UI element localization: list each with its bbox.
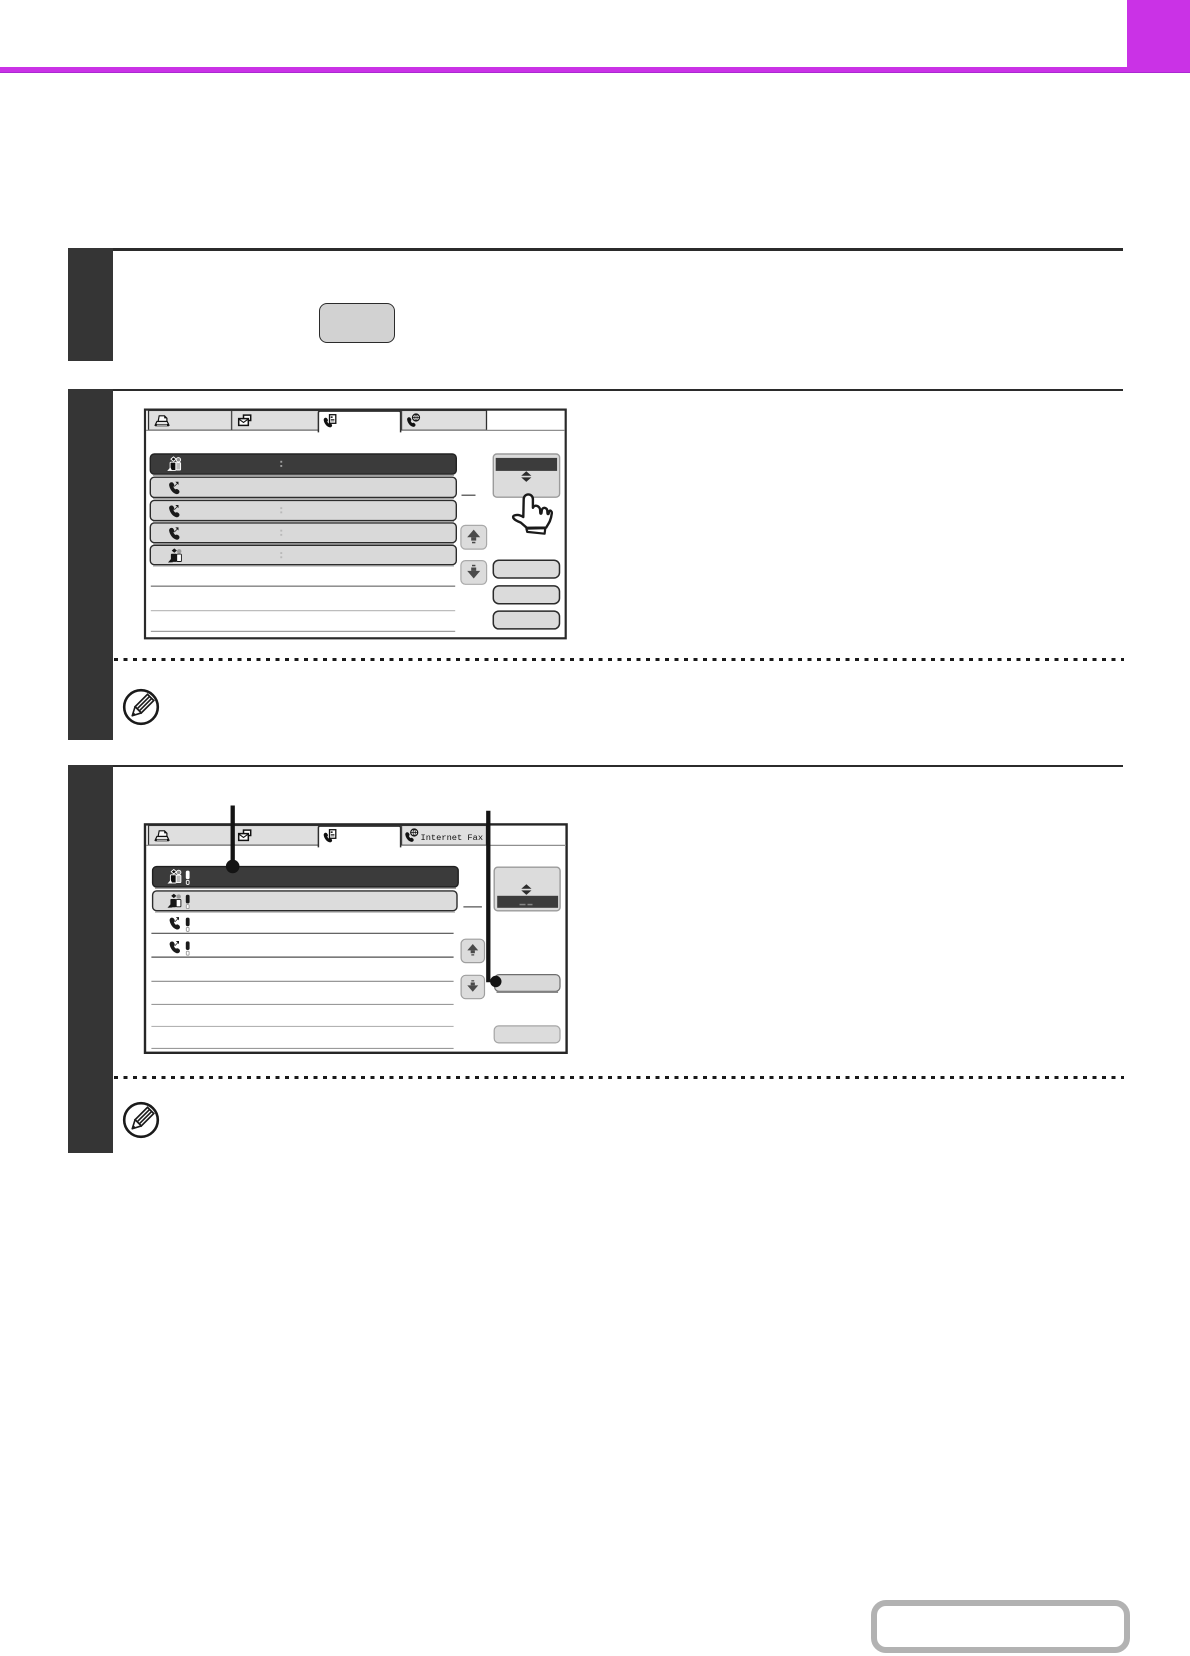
svg-text:Internet Fax: Internet Fax (421, 833, 484, 843)
